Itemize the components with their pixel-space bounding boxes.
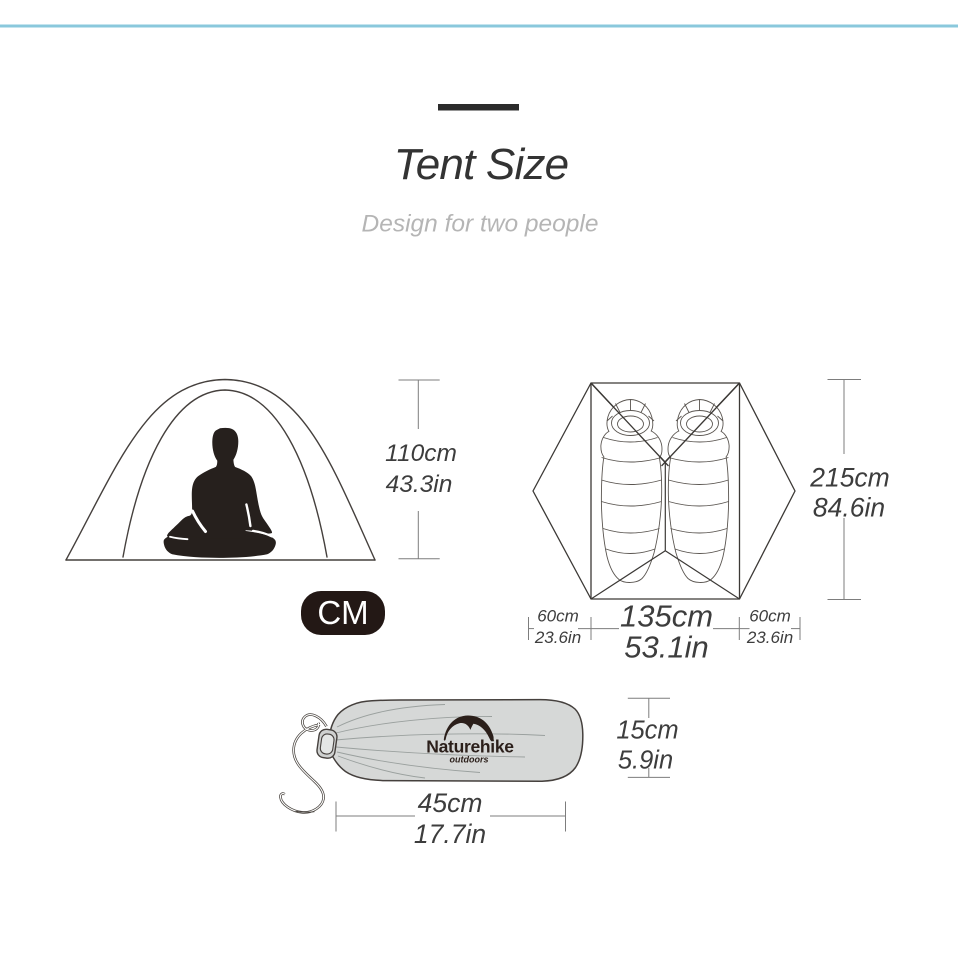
svg-text:60cm: 60cm <box>537 607 579 626</box>
svg-text:53.1in: 53.1in <box>624 629 708 664</box>
svg-text:CM: CM <box>317 594 368 631</box>
svg-text:43.3in: 43.3in <box>386 471 453 498</box>
svg-text:23.6in: 23.6in <box>746 628 793 647</box>
svg-text:5.9in: 5.9in <box>618 746 673 774</box>
svg-text:60cm: 60cm <box>749 607 791 626</box>
svg-text:Design for two people: Design for two people <box>362 211 599 238</box>
svg-text:23.6in: 23.6in <box>534 628 581 647</box>
svg-text:110cm: 110cm <box>385 440 457 467</box>
svg-text:135cm: 135cm <box>620 598 713 633</box>
svg-text:215cm: 215cm <box>809 463 890 493</box>
svg-text:15cm: 15cm <box>616 716 678 744</box>
svg-text:outdoors: outdoors <box>450 755 489 765</box>
svg-text:Tent Size: Tent Size <box>394 140 569 189</box>
svg-text:45cm: 45cm <box>418 788 483 818</box>
svg-text:17.7in: 17.7in <box>414 819 486 849</box>
svg-text:84.6in: 84.6in <box>813 493 885 523</box>
svg-text:Naturehike: Naturehike <box>426 737 514 757</box>
